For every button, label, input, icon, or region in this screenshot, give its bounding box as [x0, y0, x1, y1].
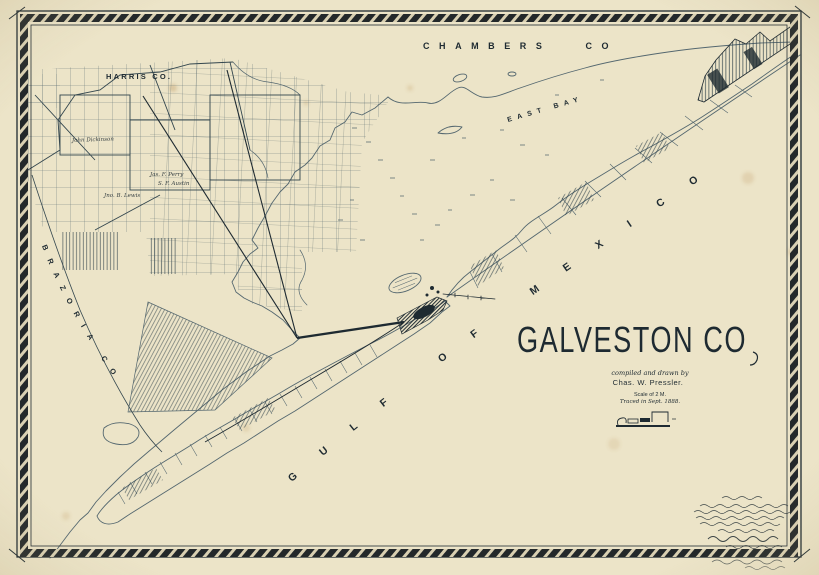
paper-vignette	[0, 0, 819, 575]
galveston-county-map: CHAMBERS CO HARRIS CO. EAST BAY BRAZORIA…	[0, 0, 819, 575]
map-scan-page: CHAMBERS CO HARRIS CO. EAST BAY BRAZORIA…	[0, 0, 819, 575]
